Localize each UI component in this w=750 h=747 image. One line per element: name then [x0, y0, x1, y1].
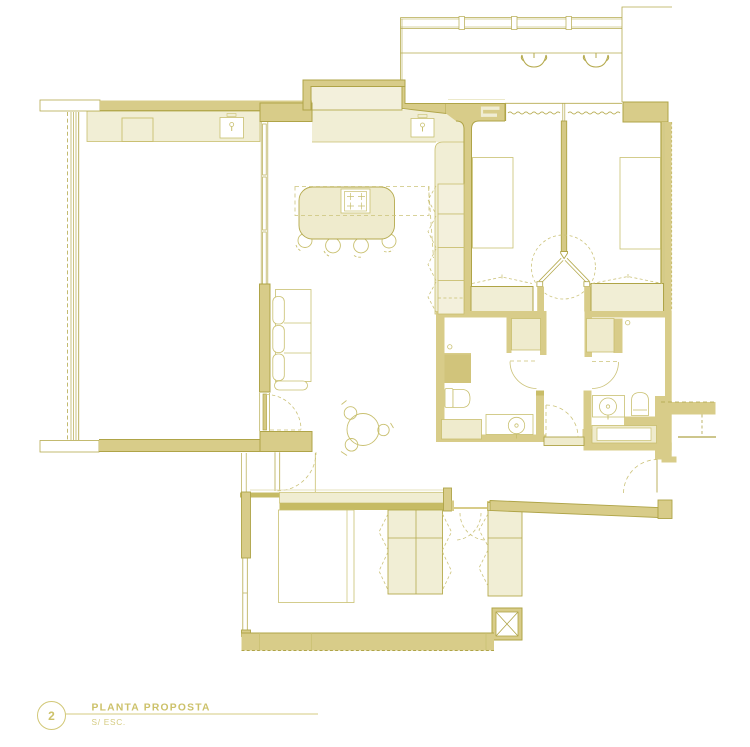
svg-text:PLANTA PROPOSTA: PLANTA PROPOSTA — [92, 703, 211, 714]
svg-text:S/ ESC.: S/ ESC. — [92, 717, 126, 727]
svg-text:2: 2 — [48, 709, 55, 723]
